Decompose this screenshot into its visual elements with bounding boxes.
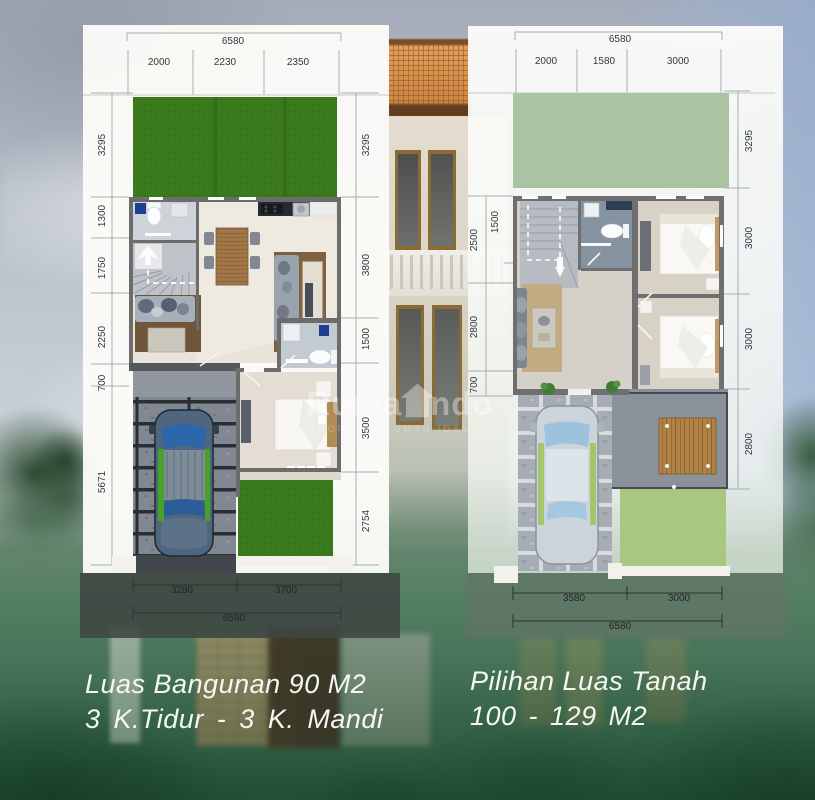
svg-text:2800: 2800 — [469, 315, 480, 338]
svg-text:5671: 5671 — [97, 470, 108, 493]
svg-text:2000: 2000 — [535, 56, 558, 67]
svg-text:2230: 2230 — [214, 57, 237, 68]
svg-text:1750: 1750 — [97, 256, 108, 279]
svg-text:2000: 2000 — [148, 57, 171, 68]
svg-text:3000: 3000 — [667, 56, 690, 67]
svg-text:1580: 1580 — [593, 56, 616, 67]
svg-text:3280: 3280 — [171, 585, 194, 596]
svg-text:3295: 3295 — [361, 133, 372, 156]
svg-text:6580: 6580 — [609, 34, 632, 45]
svg-text:6580: 6580 — [609, 621, 632, 632]
svg-text:3000: 3000 — [668, 593, 691, 604]
svg-text:2350: 2350 — [287, 57, 310, 68]
svg-text:6580: 6580 — [223, 613, 246, 624]
svg-text:3295: 3295 — [97, 133, 108, 156]
svg-text:3800: 3800 — [361, 253, 372, 276]
svg-text:3000: 3000 — [744, 226, 755, 249]
svg-text:700: 700 — [97, 374, 108, 391]
svg-text:2500: 2500 — [469, 228, 480, 251]
svg-text:2250: 2250 — [97, 325, 108, 348]
svg-text:3700: 3700 — [275, 585, 298, 596]
svg-text:2800: 2800 — [744, 432, 755, 455]
svg-text:1500: 1500 — [490, 210, 501, 233]
svg-text:1500: 1500 — [361, 327, 372, 350]
svg-text:2754: 2754 — [361, 509, 372, 532]
svg-text:3295: 3295 — [744, 129, 755, 152]
svg-text:1300: 1300 — [97, 204, 108, 227]
svg-text:3000: 3000 — [744, 327, 755, 350]
svg-text:3580: 3580 — [563, 593, 586, 604]
svg-text:6580: 6580 — [222, 36, 245, 47]
